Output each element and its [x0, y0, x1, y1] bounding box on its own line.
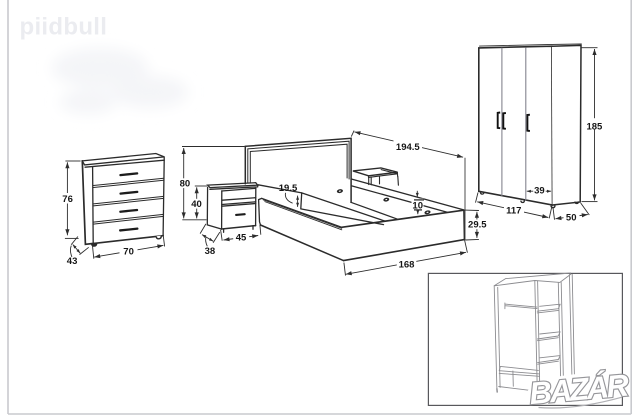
svg-text:168: 168 — [399, 259, 415, 270]
svg-text:43: 43 — [67, 256, 78, 267]
svg-text:70: 70 — [123, 246, 134, 257]
svg-text:19.5: 19.5 — [279, 183, 298, 194]
svg-text:38: 38 — [205, 246, 216, 257]
svg-text:40: 40 — [191, 199, 202, 210]
svg-text:80: 80 — [180, 178, 191, 189]
svg-text:76: 76 — [62, 194, 73, 205]
svg-text:10: 10 — [412, 201, 423, 212]
svg-text:185: 185 — [586, 122, 603, 133]
svg-text:piidbull: piidbull — [20, 14, 108, 41]
svg-text:29.5: 29.5 — [468, 220, 487, 231]
svg-text:117: 117 — [506, 205, 521, 216]
svg-text:194.5: 194.5 — [396, 142, 420, 153]
svg-text:39: 39 — [534, 186, 545, 197]
svg-text:45: 45 — [236, 233, 247, 244]
svg-text:50: 50 — [566, 212, 577, 223]
